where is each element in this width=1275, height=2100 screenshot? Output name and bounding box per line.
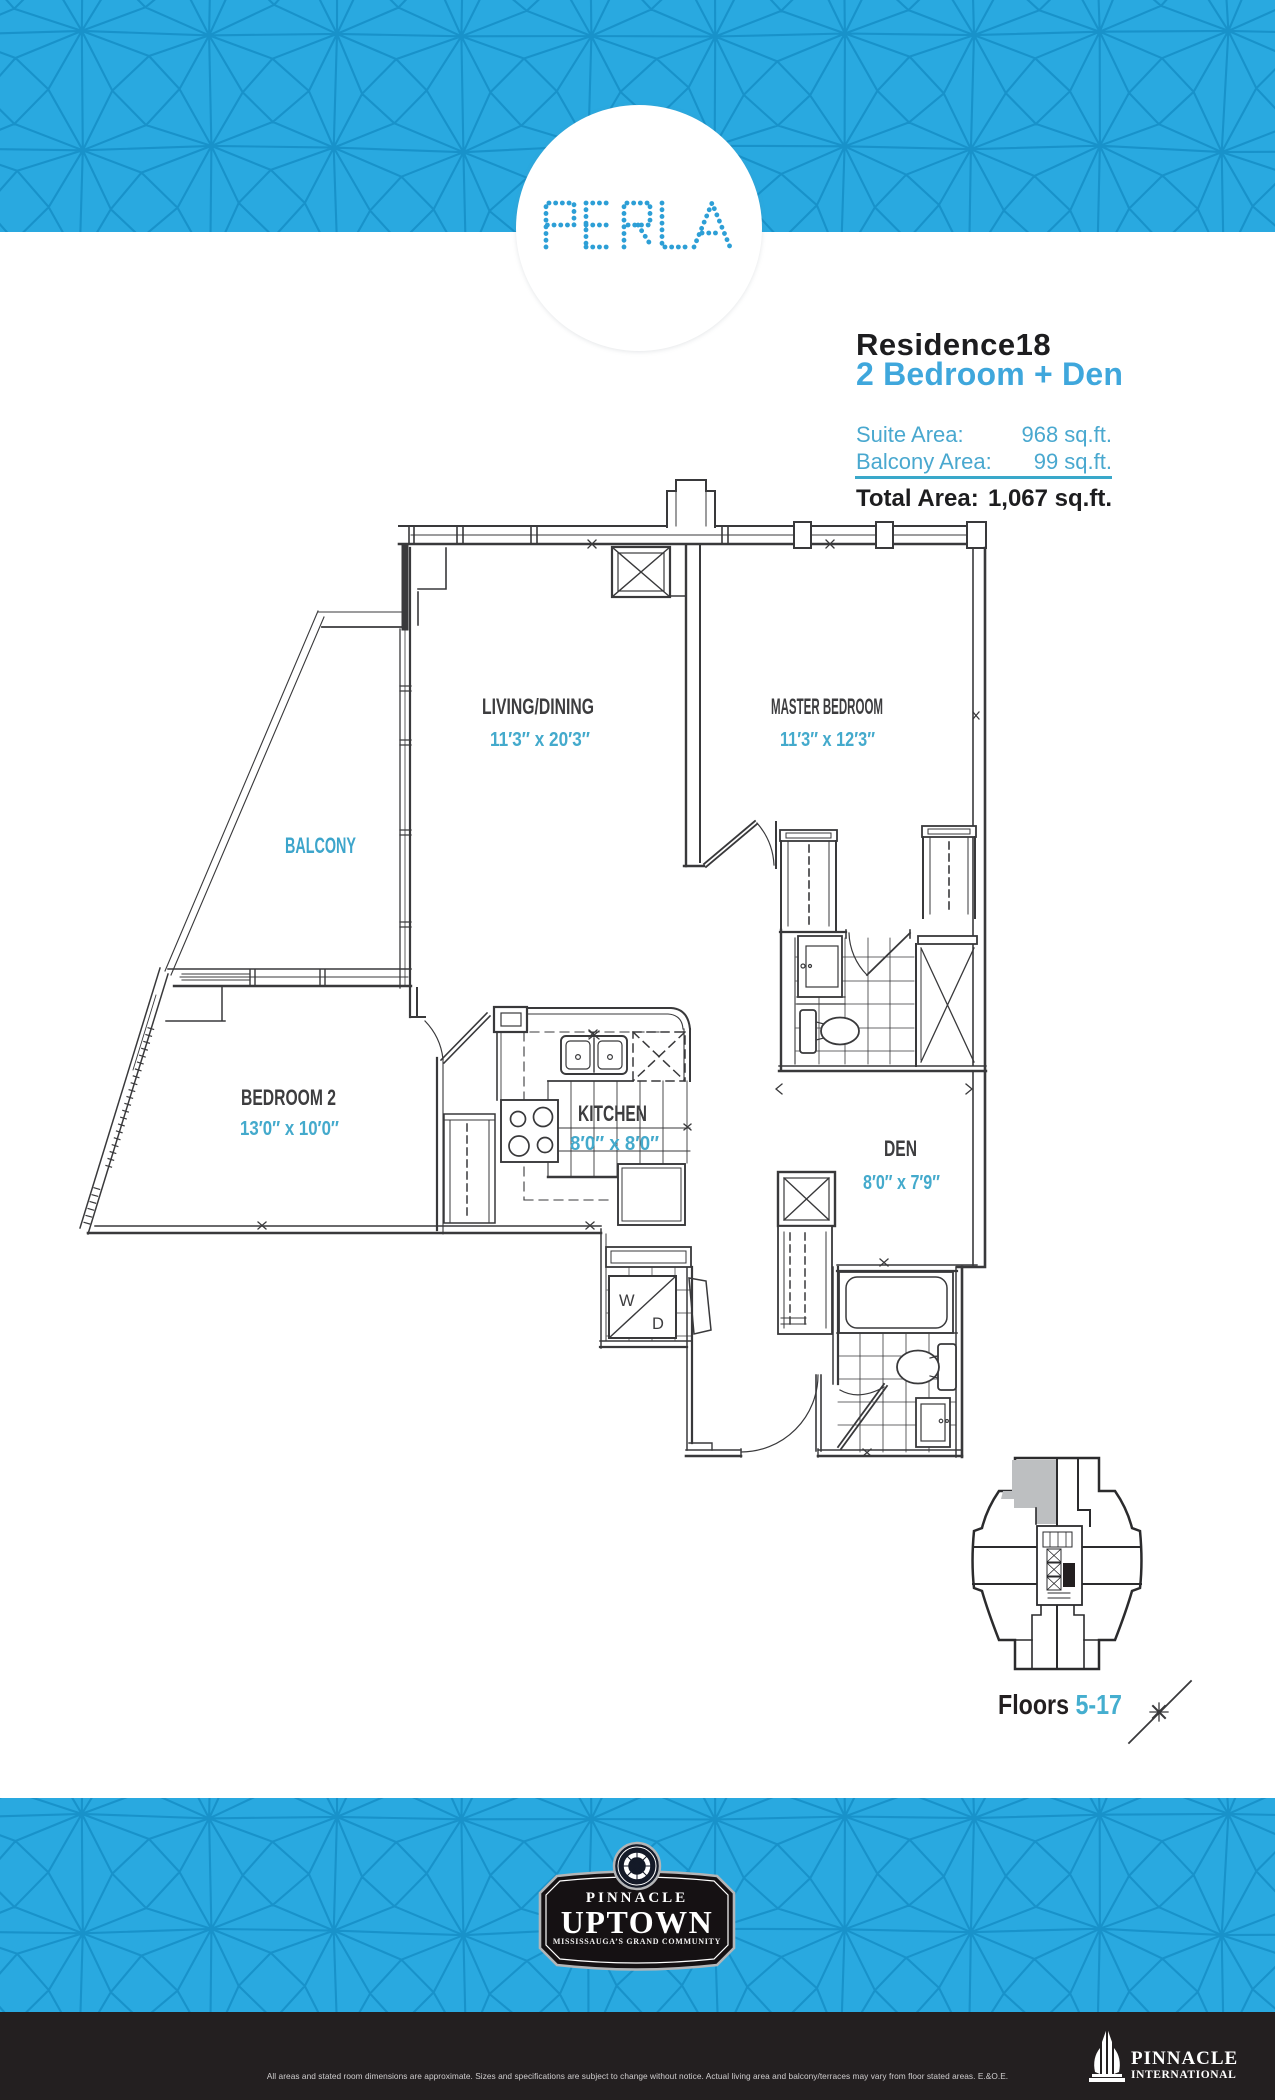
svg-text:W: W [619,1292,635,1310]
svg-text:8′0″ x 7′9″: 8′0″ x 7′9″ [863,1172,940,1194]
svg-text:11′3″ x 12′3″: 11′3″ x 12′3″ [780,729,875,751]
svg-text:BEDROOM 2: BEDROOM 2 [241,1085,336,1110]
svg-text:11′3″ x 20′3″: 11′3″ x 20′3″ [490,729,590,751]
svg-text:8′0″ x 8′0″: 8′0″ x 8′0″ [570,1133,659,1155]
svg-text:13′0″ x 10′0″: 13′0″ x 10′0″ [240,1118,339,1140]
svg-text:LIVING/DINING: LIVING/DINING [482,694,594,719]
svg-text:MISSISSAUGA’S GRAND COMMUNITY: MISSISSAUGA’S GRAND COMMUNITY [553,1937,721,1946]
svg-text:MASTER BEDROOM: MASTER BEDROOM [771,694,883,719]
svg-text:D: D [652,1315,664,1333]
svg-text:KITCHEN: KITCHEN [578,1101,647,1126]
svg-text:UPTOWN: UPTOWN [561,1904,713,1940]
svg-text:PINNACLE: PINNACLE [1131,2048,1238,2069]
svg-text:INTERNATIONAL: INTERNATIONAL [1131,2069,1236,2081]
svg-text:Floors 5-17: Floors 5-17 [998,1689,1122,1720]
svg-text:BALCONY: BALCONY [285,833,356,858]
svg-text:DEN: DEN [884,1136,917,1161]
